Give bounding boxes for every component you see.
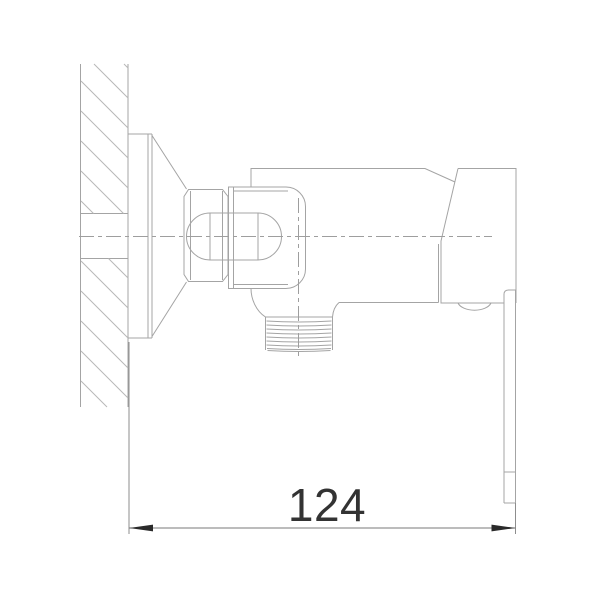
- dimension-124: 124: [129, 342, 516, 534]
- handle: [441, 169, 516, 504]
- dimension-label: 124: [288, 479, 366, 531]
- mixer-valve-outlines: [128, 134, 516, 503]
- wall-section: [81, 64, 129, 407]
- wall-hatch-lines: [81, 64, 128, 407]
- housing-outline: [229, 187, 306, 289]
- cartridge-housing: [229, 187, 306, 289]
- handle-top-right-edge: [458, 169, 516, 304]
- lever-top-cap: [504, 290, 516, 295]
- handle-under-arc: [458, 303, 491, 310]
- outlet-fillet-left: [251, 289, 266, 318]
- technical-drawing-canvas: 124: [0, 0, 600, 600]
- hex-nut: [184, 190, 228, 282]
- threaded-outlet: [251, 289, 339, 352]
- handle-left-bottom-edge: [441, 169, 504, 304]
- thread-bottom: [268, 351, 331, 352]
- dimension-arrow-left: [129, 525, 153, 532]
- outlet-fillet-right: [333, 303, 340, 318]
- technical-drawing-page: 124: [0, 0, 600, 600]
- dimension-arrow-right: [492, 525, 516, 532]
- body-top-edge: [251, 169, 455, 188]
